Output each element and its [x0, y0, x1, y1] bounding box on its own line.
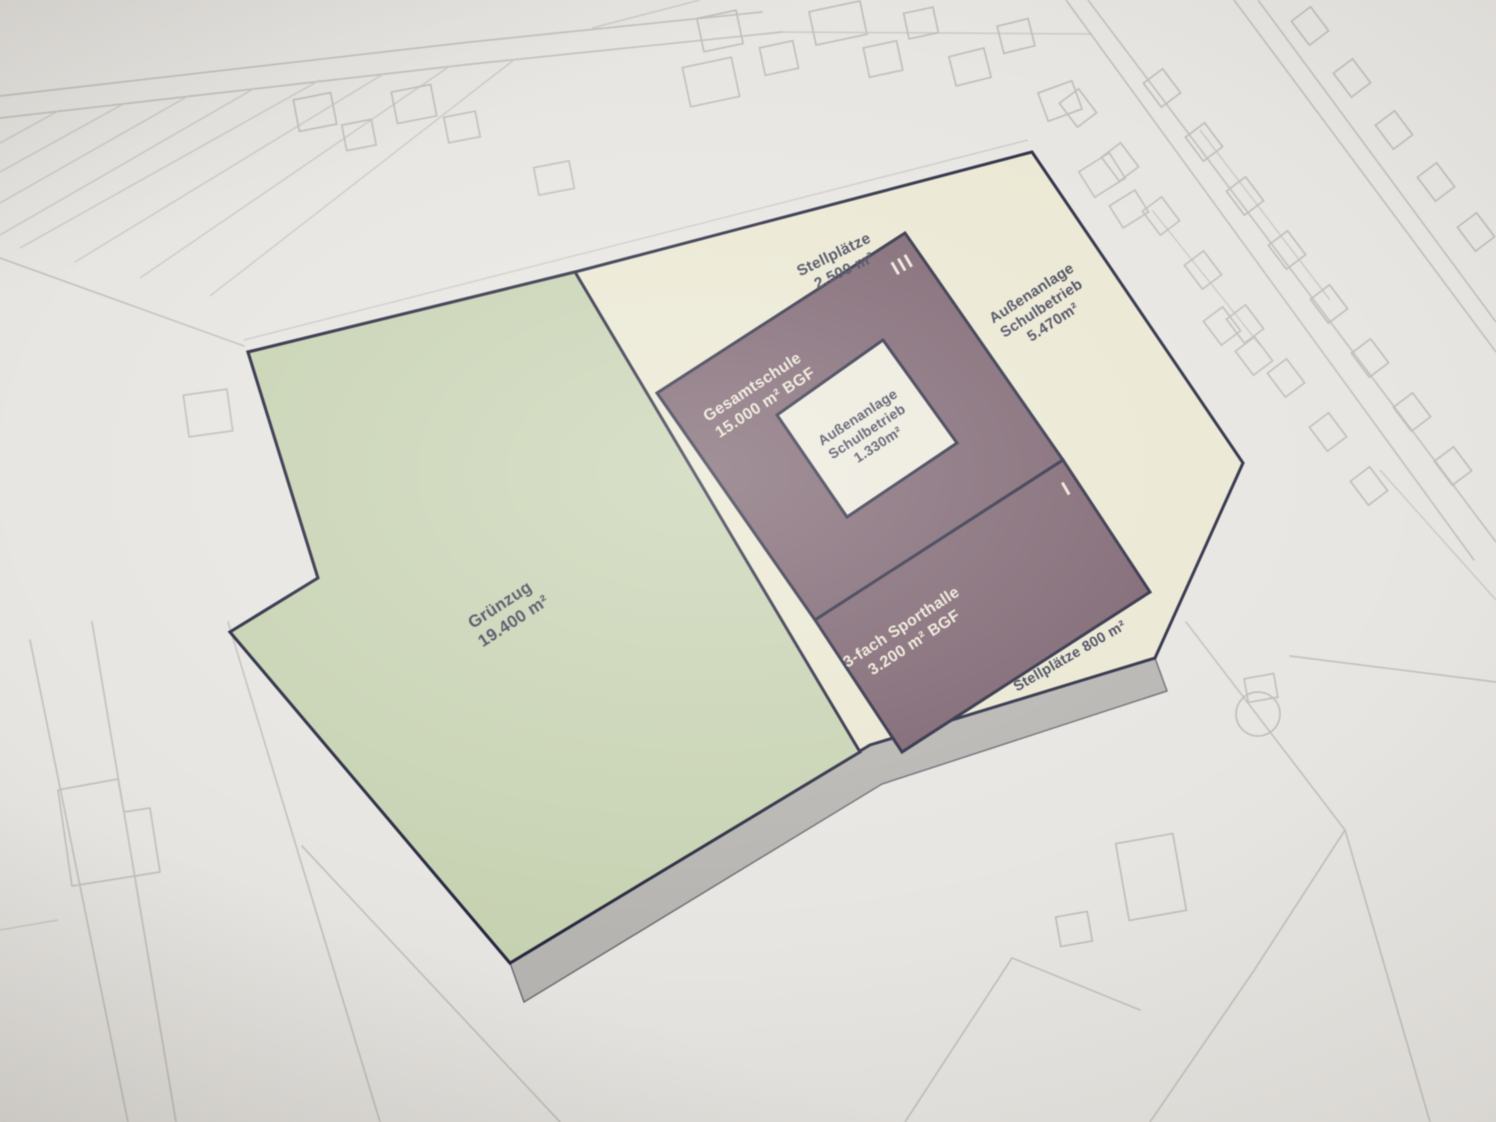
site-plan-photo: Grünzug 19.400 m² Stellplätze 2.500 m² G… [0, 0, 1496, 1122]
cadastral-map: Grünzug 19.400 m² Stellplätze 2.500 m² G… [0, 0, 1496, 1122]
